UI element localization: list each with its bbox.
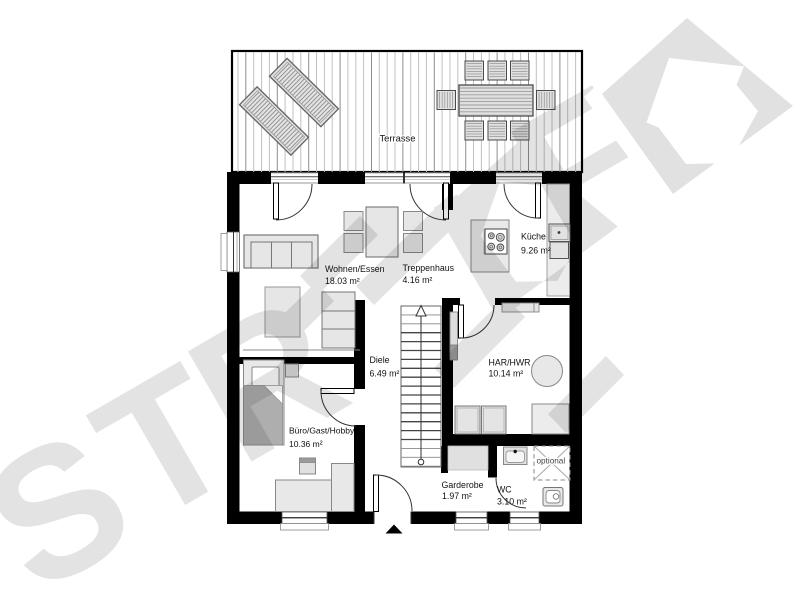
svg-text:Garderobe: Garderobe xyxy=(442,480,484,490)
svg-text:3.10 m²: 3.10 m² xyxy=(497,497,527,507)
svg-text:WC: WC xyxy=(497,485,512,495)
svg-text:1.97 m²: 1.97 m² xyxy=(442,491,472,501)
svg-text:Diele: Diele xyxy=(370,355,390,365)
svg-text:Küche: Küche xyxy=(521,232,546,242)
svg-text:4.16 m²: 4.16 m² xyxy=(403,275,433,285)
svg-text:6.49 m²: 6.49 m² xyxy=(370,369,400,379)
svg-text:Terrasse: Terrasse xyxy=(380,133,416,144)
svg-text:optional: optional xyxy=(537,457,566,466)
svg-text:9.26 m²: 9.26 m² xyxy=(521,246,551,256)
svg-text:10.14 m²: 10.14 m² xyxy=(489,369,524,379)
svg-text:HAR/HWR: HAR/HWR xyxy=(489,358,531,368)
